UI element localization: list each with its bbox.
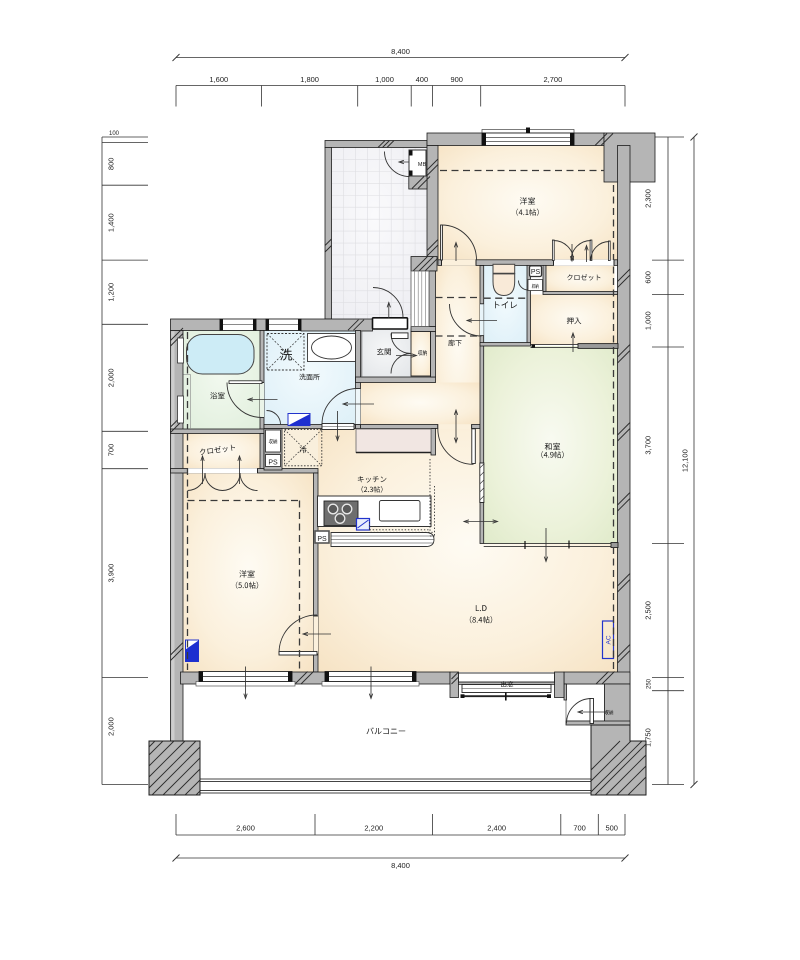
- svg-text:2,500: 2,500: [644, 601, 653, 620]
- svg-text:700: 700: [107, 444, 116, 457]
- svg-text:1,800: 1,800: [300, 75, 319, 84]
- svg-text:400: 400: [416, 75, 429, 84]
- svg-text:8,400: 8,400: [391, 861, 410, 870]
- svg-text:1,400: 1,400: [107, 213, 116, 232]
- svg-text:3,900: 3,900: [107, 564, 116, 583]
- svg-text:1,000: 1,000: [375, 75, 394, 84]
- svg-text:1,600: 1,600: [209, 75, 228, 84]
- svg-text:1,200: 1,200: [107, 283, 116, 302]
- svg-text:8,400: 8,400: [391, 47, 410, 56]
- svg-text:700: 700: [573, 824, 586, 833]
- svg-text:2,700: 2,700: [544, 75, 563, 84]
- svg-text:2,000: 2,000: [107, 368, 116, 387]
- svg-text:2,200: 2,200: [364, 824, 383, 833]
- svg-text:PS: PS: [317, 536, 327, 543]
- svg-text:AC: AC: [606, 635, 613, 644]
- svg-text:2,600: 2,600: [236, 824, 255, 833]
- svg-text:12,100: 12,100: [681, 449, 690, 472]
- svg-text:100: 100: [109, 131, 120, 137]
- svg-text:2,400: 2,400: [487, 824, 506, 833]
- svg-text:MB: MB: [418, 162, 427, 168]
- svg-text:PS: PS: [268, 460, 278, 467]
- svg-text:600: 600: [644, 271, 653, 284]
- svg-text:1,000: 1,000: [644, 311, 653, 330]
- svg-text:500: 500: [605, 824, 618, 833]
- svg-text:900: 900: [450, 75, 463, 84]
- svg-text:3,700: 3,700: [644, 436, 653, 455]
- svg-text:2,000: 2,000: [107, 717, 116, 736]
- svg-text:250: 250: [647, 678, 653, 689]
- svg-text:800: 800: [107, 158, 116, 171]
- svg-text:2,300: 2,300: [644, 189, 653, 208]
- svg-text:PS: PS: [531, 269, 541, 276]
